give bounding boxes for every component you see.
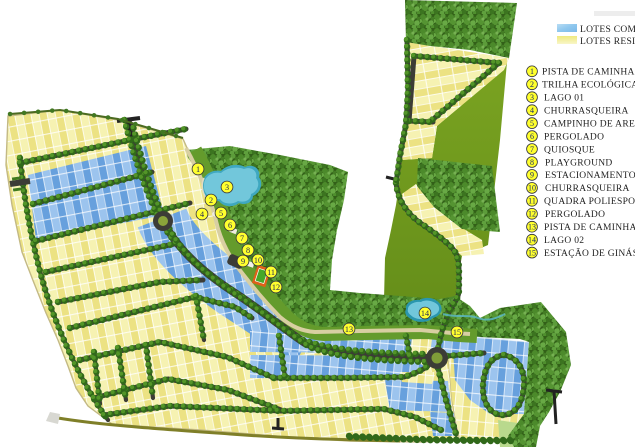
- svg-text:QUIOSQUE: QUIOSQUE: [544, 145, 595, 155]
- svg-text:7: 7: [530, 145, 534, 154]
- svg-text:14: 14: [528, 236, 536, 245]
- svg-text:PLAYGROUND: PLAYGROUND: [545, 158, 613, 168]
- svg-text:6: 6: [228, 221, 232, 230]
- svg-text:3: 3: [225, 183, 229, 192]
- svg-text:2: 2: [530, 80, 534, 89]
- svg-text:LOTES RESIDENCIAIS: LOTES RESIDENCIAIS: [580, 37, 635, 47]
- svg-text:CAMPINHO DE AREIA: CAMPINHO DE AREIA: [544, 119, 635, 129]
- svg-text:ESTACIONAMENTO: ESTACIONAMENTO: [545, 171, 635, 181]
- svg-text:PERGOLADO: PERGOLADO: [545, 210, 605, 220]
- svg-text:CHURRASQUEIRA: CHURRASQUEIRA: [544, 107, 629, 117]
- svg-text:9: 9: [530, 171, 534, 180]
- svg-text:15: 15: [453, 328, 461, 337]
- svg-text:15: 15: [528, 248, 536, 257]
- svg-text:TRILHA ECOLÓGICA: TRILHA ECOLÓGICA: [542, 79, 635, 91]
- svg-text:1: 1: [196, 165, 200, 174]
- svg-text:PISTA DE CAMINHADA: PISTA DE CAMINHADA: [542, 68, 635, 78]
- svg-text:12: 12: [528, 210, 536, 219]
- svg-text:3: 3: [530, 93, 534, 102]
- svg-text:5: 5: [530, 119, 534, 128]
- svg-text:2: 2: [209, 196, 213, 205]
- svg-text:CHURRASQUEIRA: CHURRASQUEIRA: [545, 184, 630, 194]
- svg-text:4: 4: [530, 106, 534, 115]
- svg-text:PISTA DE CAMINHADA: PISTA DE CAMINHADA: [544, 223, 635, 233]
- svg-text:5: 5: [219, 209, 223, 218]
- svg-text:10: 10: [528, 184, 536, 193]
- svg-text:14: 14: [421, 309, 429, 318]
- svg-text:11: 11: [267, 268, 275, 277]
- svg-text:13: 13: [345, 325, 353, 334]
- svg-text:1: 1: [530, 67, 534, 76]
- svg-text:13: 13: [528, 223, 536, 232]
- svg-text:7: 7: [240, 234, 244, 243]
- svg-text:9: 9: [241, 257, 245, 266]
- svg-text:ESTAÇÃO DE GINÁSTICA: ESTAÇÃO DE GINÁSTICA: [544, 247, 635, 259]
- svg-text:11: 11: [528, 197, 536, 206]
- svg-text:LOTES COMERCIAIS: LOTES COMERCIAIS: [580, 25, 635, 35]
- svg-text:PERGOLADO: PERGOLADO: [544, 132, 604, 142]
- svg-text:8: 8: [246, 246, 250, 255]
- svg-text:QUADRA POLIESPORTIVA: QUADRA POLIESPORTIVA: [544, 197, 635, 207]
- svg-text:LAGO 01: LAGO 01: [544, 94, 584, 104]
- svg-text:LAGO 02: LAGO 02: [544, 236, 584, 246]
- svg-text:4: 4: [200, 210, 204, 219]
- svg-text:12: 12: [272, 283, 280, 292]
- svg-text:8: 8: [530, 158, 534, 167]
- svg-text:6: 6: [530, 132, 534, 141]
- svg-text:10: 10: [254, 256, 262, 265]
